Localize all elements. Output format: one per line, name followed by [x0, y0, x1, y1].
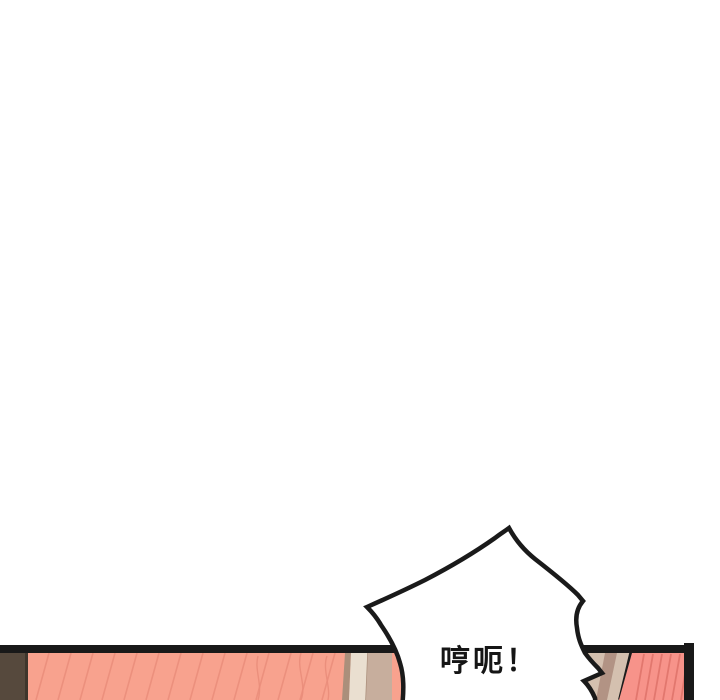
comic-panel — [0, 510, 720, 700]
panel-right-border — [684, 643, 694, 700]
webtoon-page: 哼呃！ — [0, 0, 720, 700]
speech-bubble-text: 哼呃！ — [440, 636, 539, 680]
tan-strip-mid-left — [366, 653, 392, 700]
panel-top-border — [0, 645, 694, 653]
wall-strip-edge — [25, 646, 28, 700]
cream-strip — [349, 653, 368, 700]
wall-strip — [0, 646, 28, 700]
